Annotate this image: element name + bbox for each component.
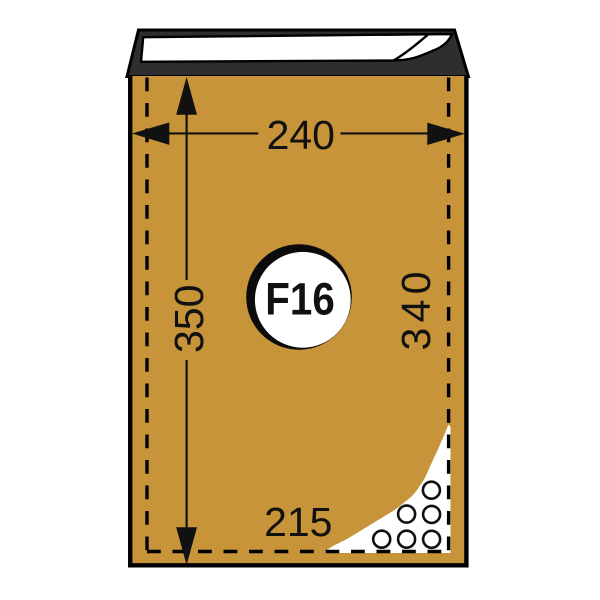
svg-text:340: 340 bbox=[393, 272, 439, 351]
svg-text:350: 350 bbox=[166, 285, 212, 353]
svg-text:240: 240 bbox=[267, 112, 335, 158]
svg-text:F16: F16 bbox=[265, 274, 335, 325]
svg-text:215: 215 bbox=[264, 499, 332, 545]
